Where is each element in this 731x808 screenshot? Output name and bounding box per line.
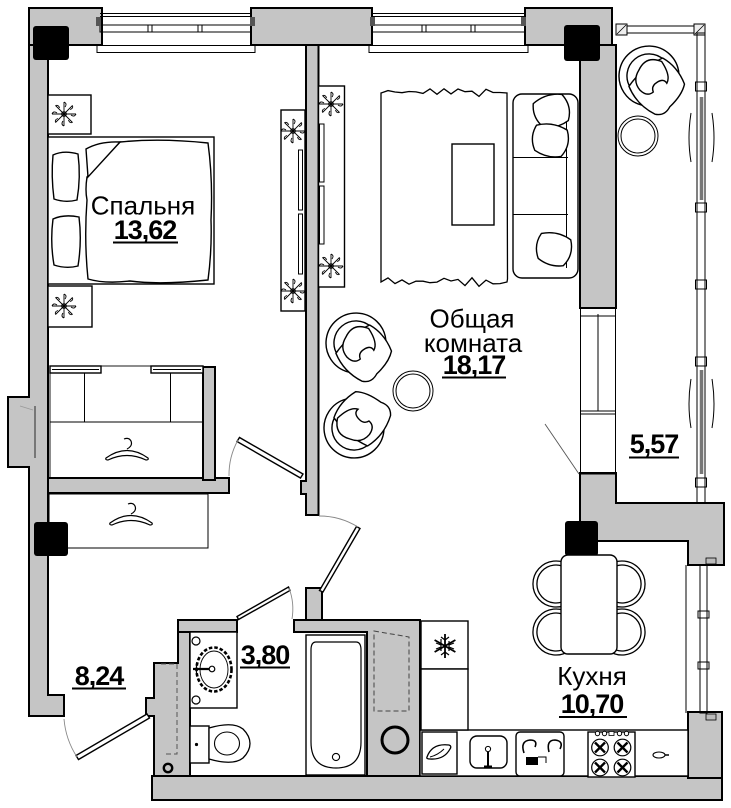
svg-text:10,70: 10,70 xyxy=(561,689,624,719)
svg-text:3,80: 3,80 xyxy=(241,640,290,670)
svg-text:13,62: 13,62 xyxy=(114,215,177,245)
svg-text:18,17: 18,17 xyxy=(443,350,506,380)
svg-text:5,57: 5,57 xyxy=(630,429,679,459)
svg-text:Кухня: Кухня xyxy=(557,661,627,691)
svg-text:8,24: 8,24 xyxy=(75,661,125,691)
